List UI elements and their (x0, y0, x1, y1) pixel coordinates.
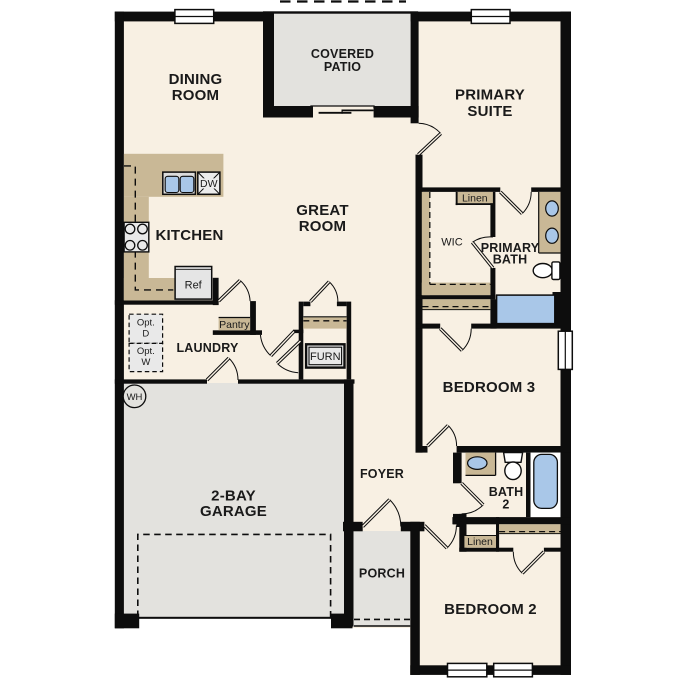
svg-text:W: W (141, 357, 150, 368)
svg-text:SUITE: SUITE (467, 103, 512, 120)
svg-text:PATIO: PATIO (324, 60, 361, 74)
svg-text:2: 2 (502, 498, 509, 512)
svg-text:Opt.: Opt. (137, 346, 155, 357)
svg-text:BATH: BATH (493, 253, 528, 267)
svg-text:GREAT: GREAT (296, 202, 348, 219)
svg-text:Linen: Linen (462, 193, 488, 205)
svg-text:FURN: FURN (310, 351, 341, 363)
svg-text:COVERED: COVERED (311, 47, 374, 61)
svg-text:DW: DW (200, 178, 218, 190)
svg-text:2-BAY: 2-BAY (211, 488, 256, 505)
svg-text:LAUNDRY: LAUNDRY (176, 341, 239, 355)
svg-text:WH: WH (127, 392, 143, 403)
svg-text:WIC: WIC (441, 237, 462, 249)
svg-text:ROOM: ROOM (172, 87, 219, 104)
svg-text:Pantry: Pantry (219, 319, 250, 331)
svg-text:BEDROOM 2: BEDROOM 2 (444, 601, 537, 618)
svg-text:PORCH: PORCH (359, 567, 405, 581)
svg-text:FOYER: FOYER (360, 467, 404, 481)
svg-text:Linen: Linen (467, 536, 493, 548)
svg-text:GARAGE: GARAGE (200, 503, 267, 520)
svg-text:BEDROOM 3: BEDROOM 3 (443, 379, 536, 396)
svg-text:KITCHEN: KITCHEN (155, 227, 223, 244)
svg-text:Opt.: Opt. (137, 317, 155, 328)
svg-text:D: D (142, 328, 149, 339)
svg-text:PRIMARY: PRIMARY (455, 87, 525, 104)
svg-text:Ref: Ref (185, 280, 203, 292)
svg-text:ROOM: ROOM (299, 218, 346, 235)
svg-text:DINING: DINING (169, 71, 223, 88)
